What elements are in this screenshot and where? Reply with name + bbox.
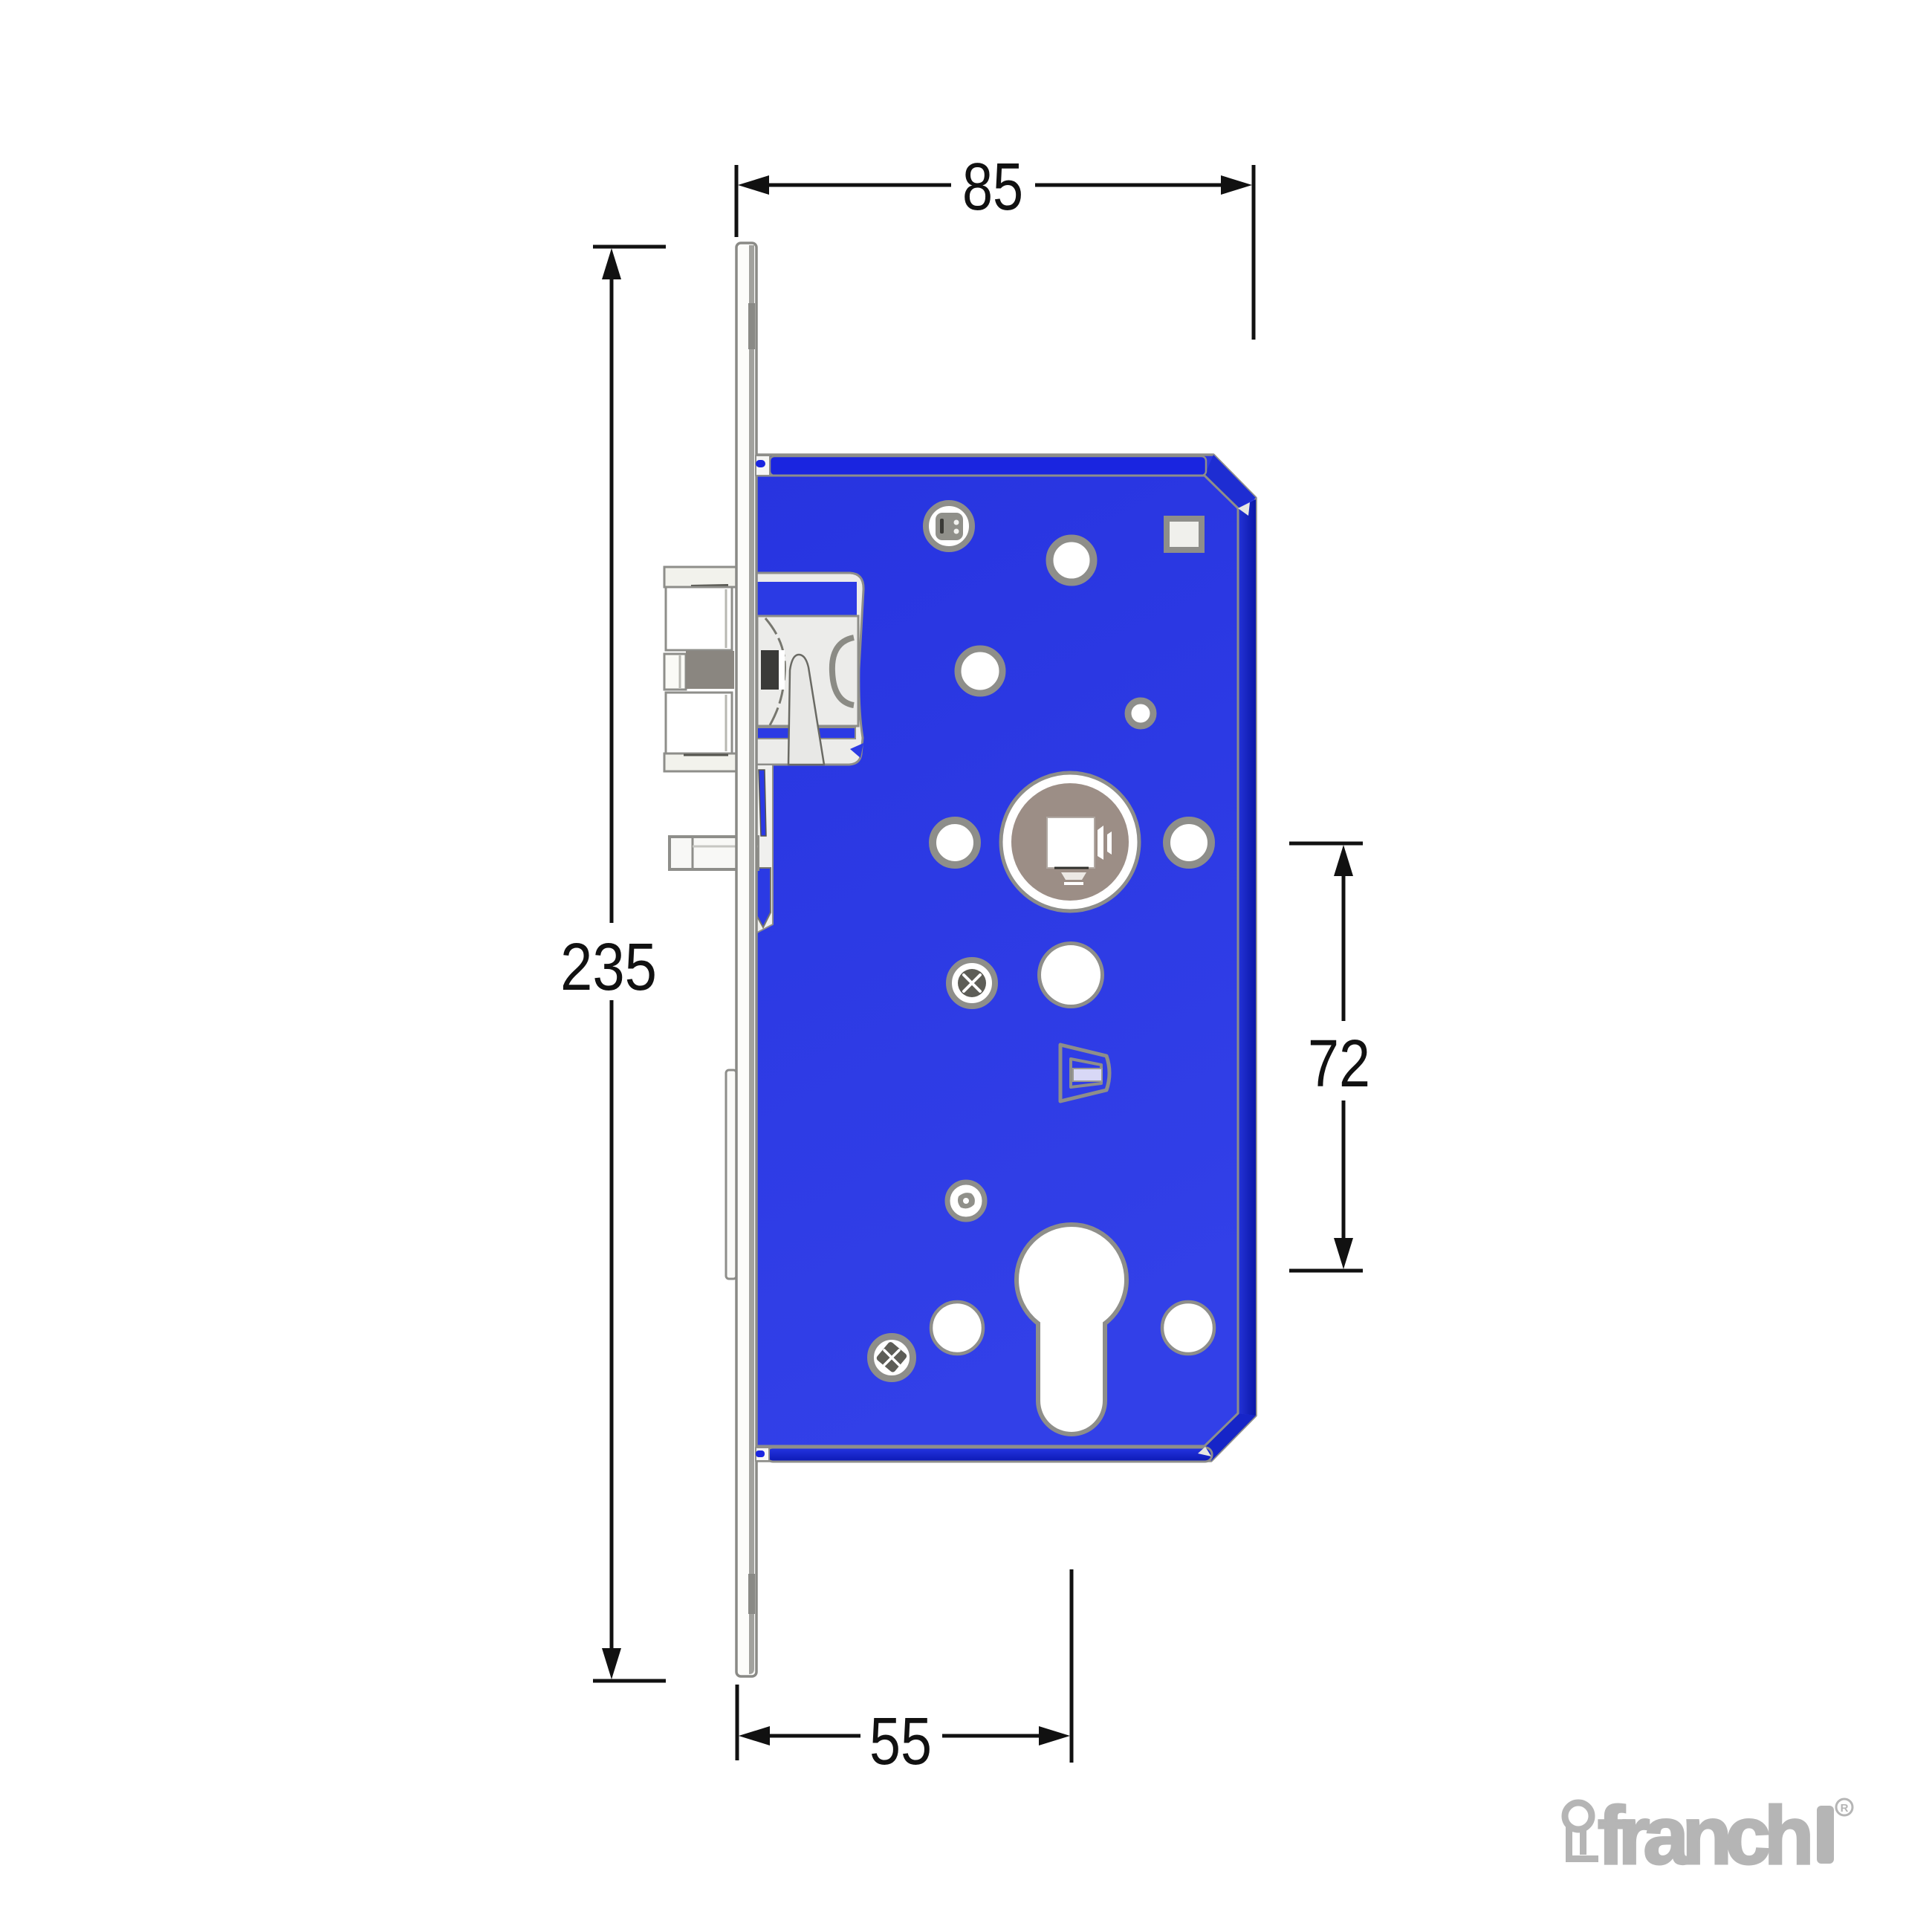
svg-text:85: 85	[962, 150, 1023, 224]
svg-text:franch: franch	[1598, 1790, 1809, 1881]
svg-text:72: 72	[1308, 1027, 1370, 1101]
svg-text:235: 235	[560, 930, 657, 1005]
svg-text:55: 55	[869, 1705, 932, 1779]
svg-text:R: R	[1841, 1802, 1849, 1815]
